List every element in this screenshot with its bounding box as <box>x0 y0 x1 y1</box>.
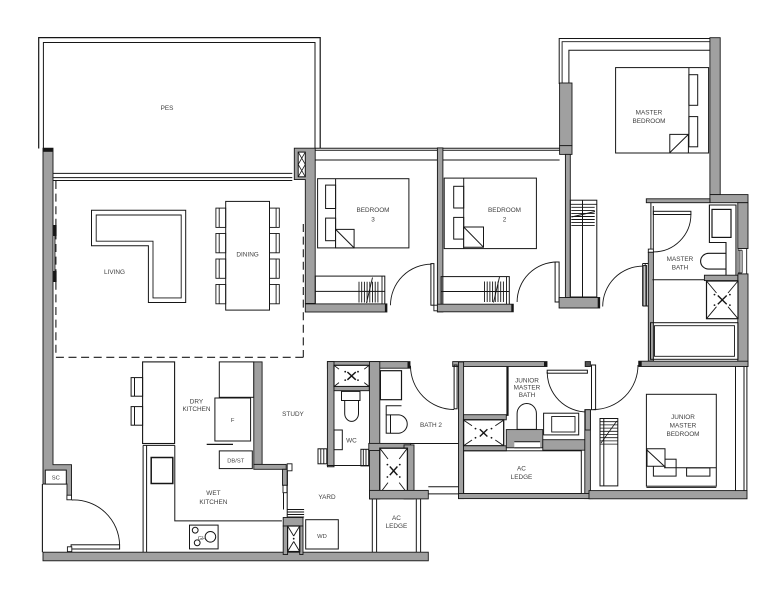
svg-text:BEDROOM: BEDROOM <box>666 431 699 438</box>
svg-text:BEDROOM: BEDROOM <box>488 207 521 214</box>
svg-text:AC: AC <box>517 466 526 473</box>
svg-text:JUNIOR: JUNIOR <box>515 377 539 384</box>
svg-text:KITCHEN: KITCHEN <box>182 406 210 413</box>
svg-text:3: 3 <box>371 217 375 224</box>
svg-text:MASTER: MASTER <box>636 110 663 117</box>
svg-text:JUNIOR: JUNIOR <box>671 414 695 421</box>
svg-text:AC: AC <box>392 515 401 522</box>
svg-text:WD: WD <box>317 534 327 540</box>
svg-text:LEDGE: LEDGE <box>386 523 408 530</box>
svg-text:MASTER: MASTER <box>670 423 697 430</box>
svg-text:STUDY: STUDY <box>282 411 304 418</box>
svg-text:2: 2 <box>503 217 507 224</box>
svg-text:PES: PES <box>161 105 174 112</box>
svg-text:BATH 2: BATH 2 <box>420 422 442 429</box>
svg-text:DB/ST: DB/ST <box>227 459 245 465</box>
svg-text:BEDROOM: BEDROOM <box>356 207 389 214</box>
svg-text:DRY: DRY <box>190 399 204 406</box>
svg-text:F: F <box>231 418 235 424</box>
svg-text:LEDGE: LEDGE <box>511 474 533 481</box>
svg-text:YARD: YARD <box>318 494 336 501</box>
svg-text:WC: WC <box>346 437 357 444</box>
svg-text:WET: WET <box>206 490 220 497</box>
svg-text:BEDROOM: BEDROOM <box>632 118 665 125</box>
svg-text:BATH: BATH <box>519 392 536 399</box>
svg-text:DINING: DINING <box>236 252 258 259</box>
svg-text:SC: SC <box>52 476 60 482</box>
svg-text:BATH: BATH <box>672 265 689 272</box>
svg-text:MASTER: MASTER <box>667 256 694 263</box>
svg-text:GH: GH <box>198 536 206 542</box>
svg-text:KITCHEN: KITCHEN <box>199 499 227 506</box>
svg-text:LIVING: LIVING <box>104 269 125 276</box>
svg-text:MASTER: MASTER <box>514 385 541 392</box>
